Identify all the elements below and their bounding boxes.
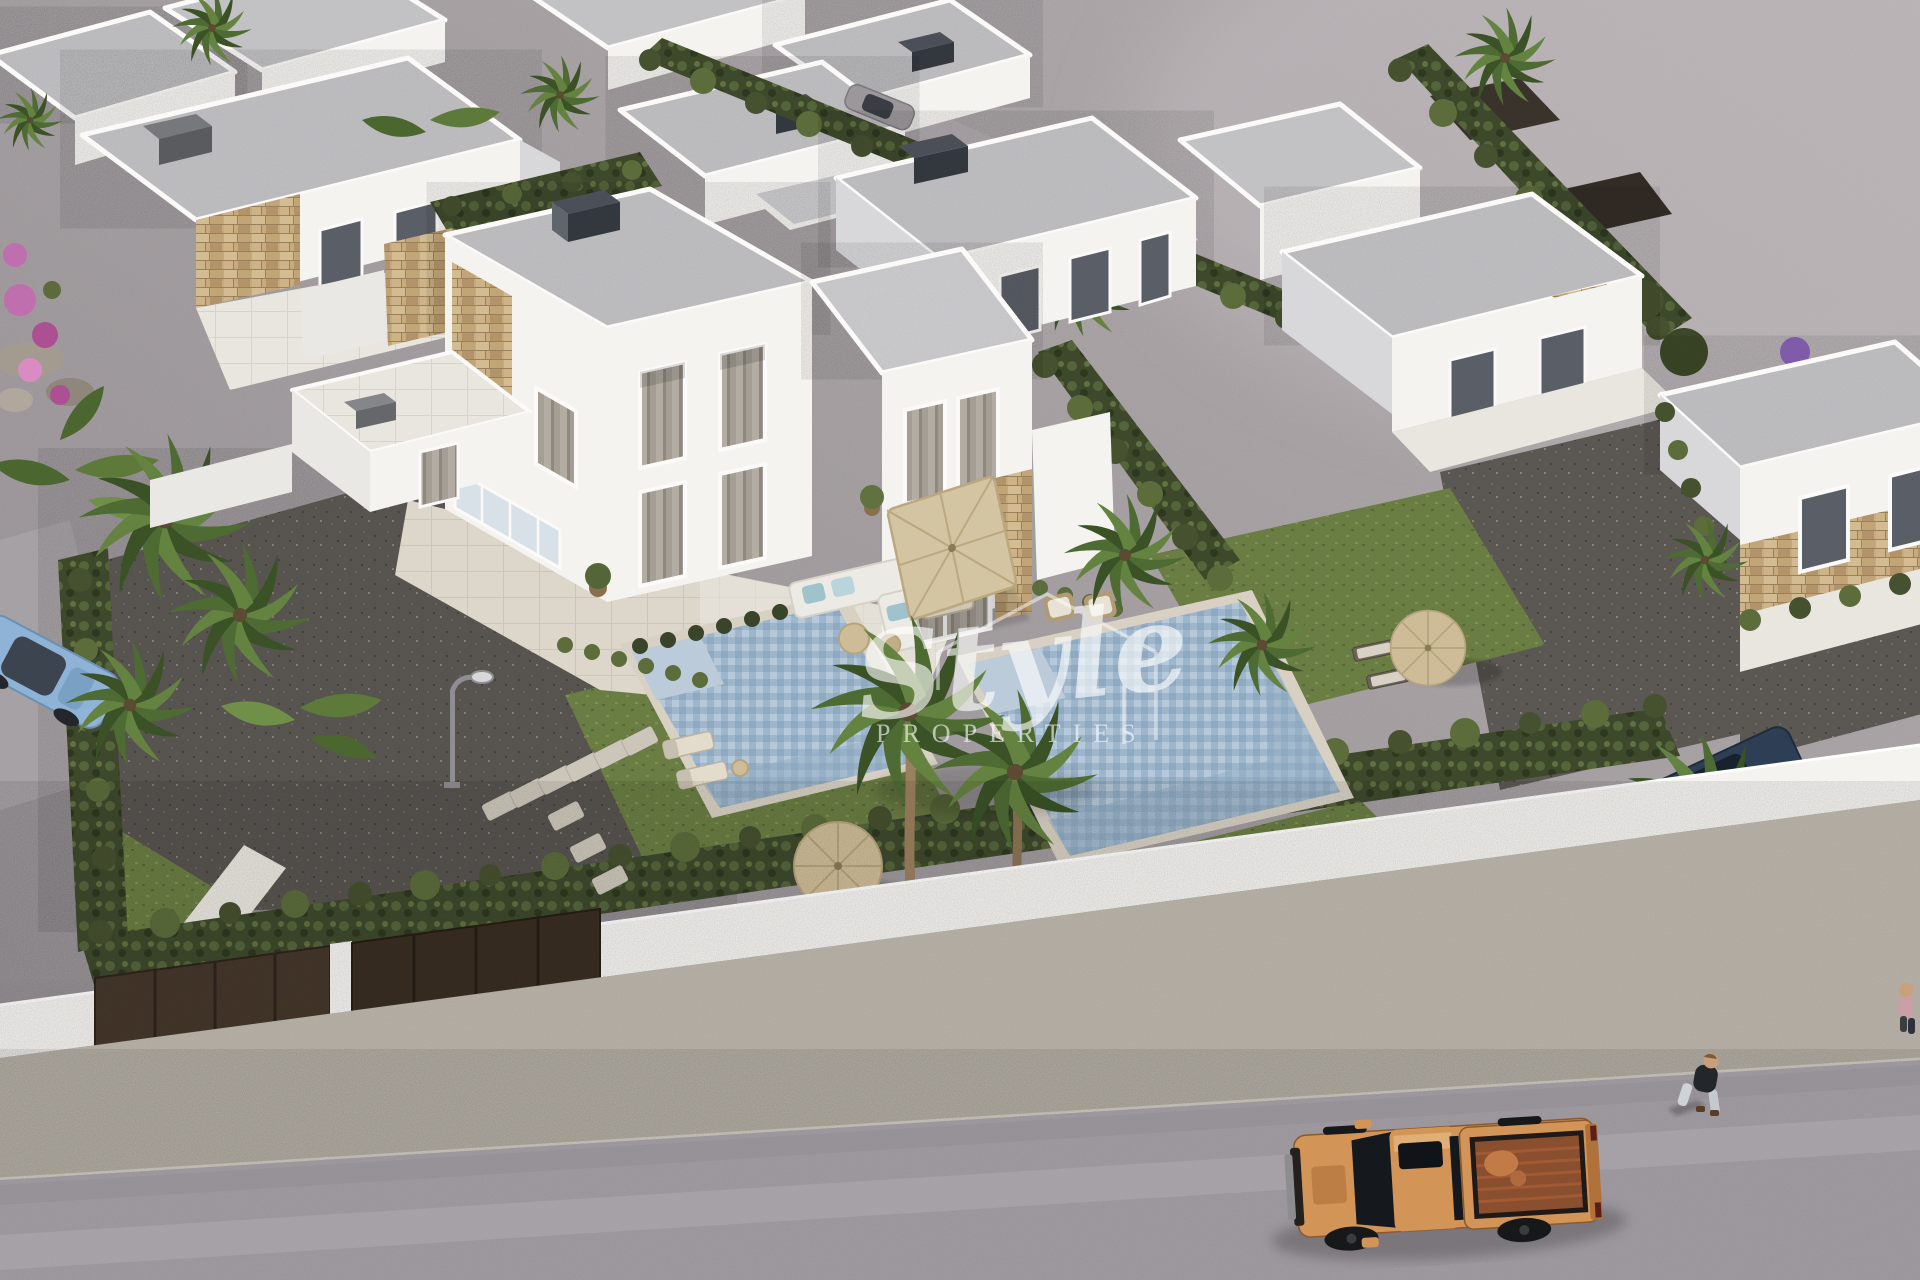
aerial-render-of-villa-development: Style PROPERTIES <box>0 0 1920 1280</box>
pedestrian-partial <box>1898 983 1915 1034</box>
watermark-sub-text: PROPERTIES <box>876 719 1148 748</box>
scene-canvas: Style PROPERTIES <box>0 0 1920 1280</box>
